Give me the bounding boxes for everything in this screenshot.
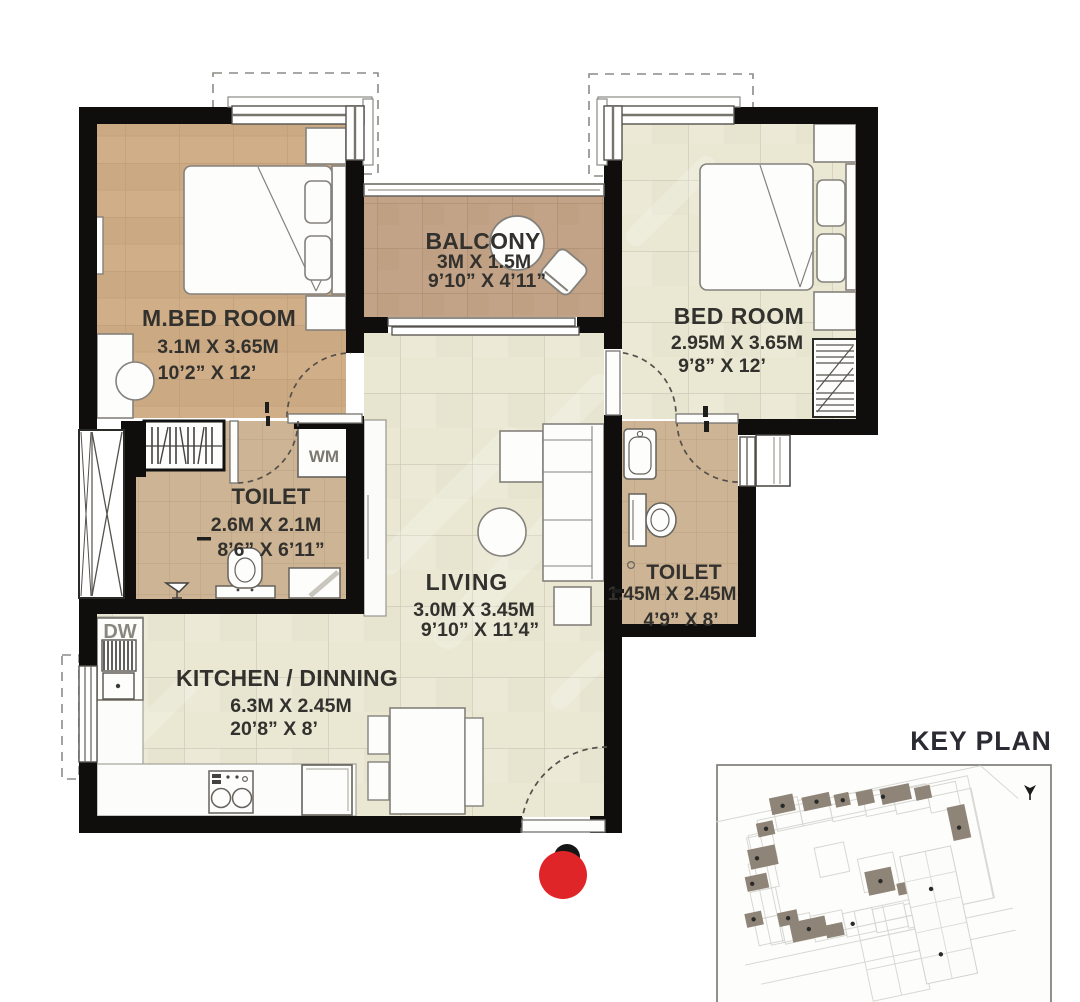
svg-text:10’2” X 12’: 10’2” X 12’ [158,362,257,384]
svg-text:20’8” X 8’: 20’8” X 8’ [230,718,318,740]
svg-text:KITCHEN / DINNING: KITCHEN / DINNING [176,665,398,691]
svg-text:M.BED ROOM: M.BED ROOM [142,305,296,331]
svg-text:2.6M X 2.1M: 2.6M X 2.1M [211,514,322,536]
svg-text:3.0M X 3.45M: 3.0M X 3.45M [413,599,534,621]
svg-text:8’6” X 6’11”: 8’6” X 6’11” [217,539,324,561]
svg-text:2.95M X 3.65M: 2.95M X 3.65M [671,332,803,354]
svg-text:9’10” X 4’11”: 9’10” X 4’11” [428,270,546,292]
svg-text:6.3M X 2.45M: 6.3M X 2.45M [230,695,351,717]
svg-text:BED ROOM: BED ROOM [674,303,805,329]
svg-text:LIVING: LIVING [426,569,509,595]
svg-text:1.45M X 2.45M: 1.45M X 2.45M [608,584,737,605]
svg-text:TOILET: TOILET [231,484,310,509]
svg-text:KEY PLAN: KEY PLAN [910,726,1052,756]
svg-text:WM: WM [309,447,339,466]
svg-text:4’9” X 8’: 4’9” X 8’ [644,610,719,631]
svg-text:TOILET: TOILET [646,561,721,584]
svg-text:9’8” X 12’: 9’8” X 12’ [678,355,766,377]
svg-text:3.1M X 3.65M: 3.1M X 3.65M [157,336,278,358]
svg-text:9’10” X 11’4”: 9’10” X 11’4” [421,619,539,641]
